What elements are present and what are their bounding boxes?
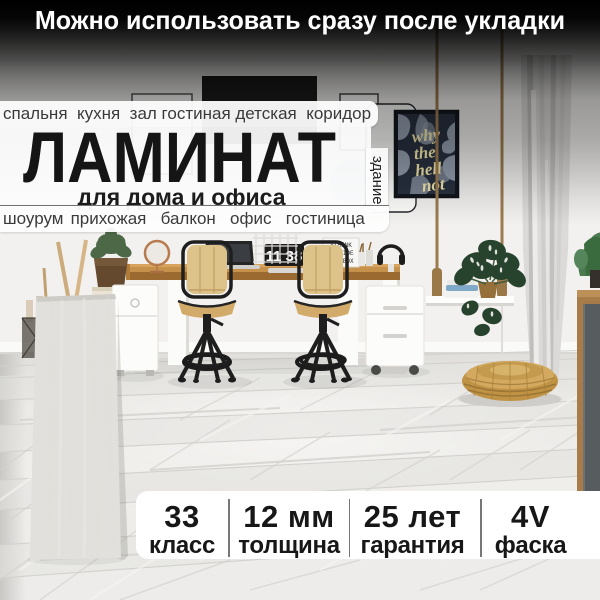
svg-text:not: not xyxy=(421,174,447,195)
